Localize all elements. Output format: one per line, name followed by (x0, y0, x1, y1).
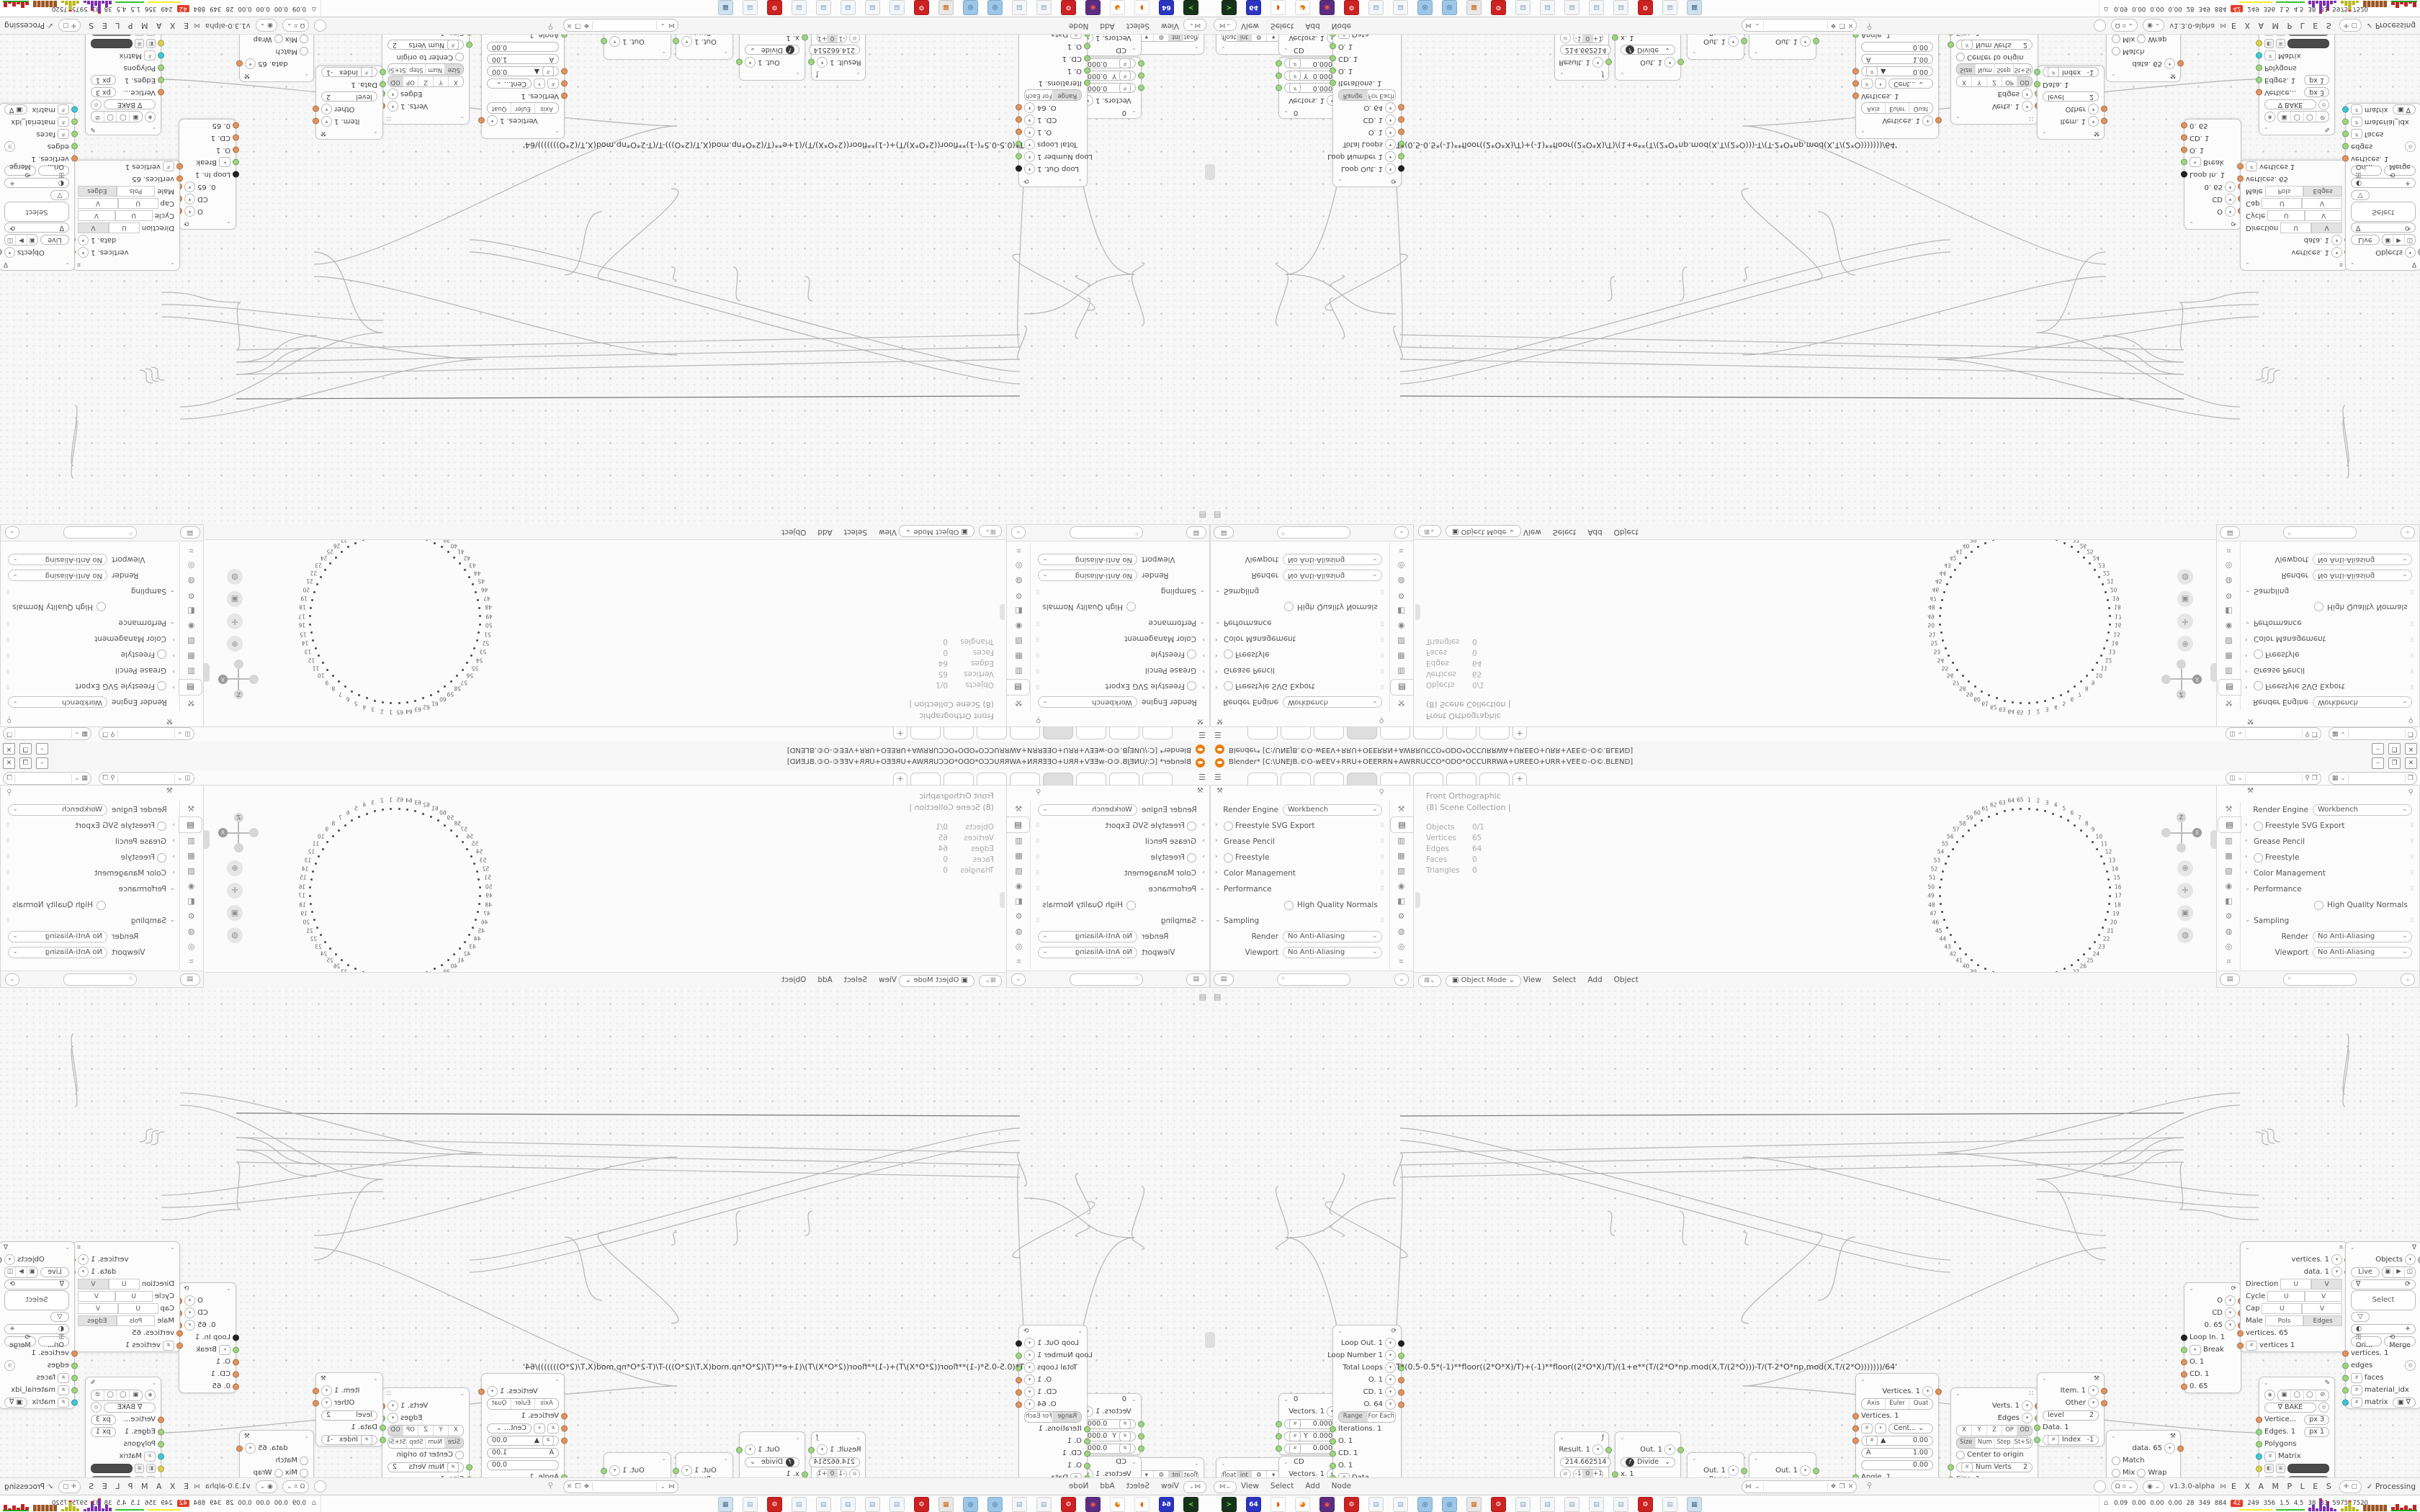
socket-orange[interactable] (2177, 1445, 2184, 1452)
option-button[interactable]: Z (1987, 1426, 2002, 1436)
table-cell-button[interactable]: Edges (78, 1315, 117, 1326)
node-header[interactable]: ⌄⟳ (179, 217, 236, 229)
table-cell-button[interactable]: V (2305, 210, 2342, 221)
option-button[interactable]: X (1957, 77, 1972, 87)
socket-green[interactable] (1813, 1467, 1819, 1474)
group-title[interactable]: Freestyle (1235, 650, 1269, 659)
menu-item[interactable]: Select (1553, 976, 1576, 984)
socket-green[interactable] (2256, 65, 2262, 71)
socket-orange[interactable] (561, 68, 568, 75)
socket-cyan[interactable] (2256, 1453, 2262, 1459)
math-function-dropdown[interactable]: fDivide⌄ (1621, 45, 1675, 55)
properties-tab-icon[interactable]: ⚒ (1008, 801, 1030, 816)
collapse-chevron-icon[interactable]: ⌄ (151, 1377, 156, 1389)
socket-orange[interactable] (233, 135, 239, 141)
display-toggle[interactable]: ◯ (2291, 1390, 2304, 1400)
collapse-chevron-icon[interactable]: ⌄ (304, 1431, 309, 1442)
socket-green[interactable] (2181, 1346, 2187, 1353)
math-function-dropdown[interactable]: fDivide⌄ (745, 1457, 799, 1467)
checkbox[interactable] (274, 1469, 283, 1477)
checkbox[interactable] (1284, 602, 1294, 611)
color-swatch[interactable] (2287, 39, 2329, 48)
group-title[interactable]: Performance (2254, 618, 2302, 627)
socket-green[interactable] (2181, 159, 2187, 166)
tree-unlink-button[interactable]: ✕ (1848, 22, 1854, 29)
socket-orange[interactable] (1852, 68, 1859, 75)
workspace-tab[interactable] (1043, 773, 1073, 786)
property-enum[interactable]: No Anti-Aliasing (8, 947, 107, 958)
group-title[interactable]: Freestyle SVG Export (2265, 682, 2345, 690)
copy-icon[interactable]: ❐ (2408, 730, 2414, 737)
taskbar-icon-firefox[interactable]: ◗ (1270, 1497, 1286, 1512)
node-header[interactable]: ⌄· (1216, 1458, 1286, 1470)
taskbar-icon-notepad[interactable]: ▤ (1540, 0, 1555, 15)
table-cell-button[interactable]: U (2262, 1303, 2302, 1314)
node-header[interactable]: ⌄✎ (86, 123, 161, 135)
socket-orange[interactable] (1852, 93, 1859, 99)
group-checkbox[interactable] (1187, 822, 1196, 831)
properties-tab-icon[interactable]: ⚙ (180, 588, 202, 603)
properties-tab-icon[interactable]: ▧ (2218, 634, 2240, 649)
socket-green[interactable] (2034, 69, 2040, 76)
socket-menu-icon[interactable]: ▾ (1024, 1350, 1035, 1361)
workspace-tab[interactable] (1413, 773, 1443, 786)
workspace-tab[interactable] (1109, 773, 1139, 786)
option-button[interactable]: Axis (534, 104, 558, 114)
editor-type-button[interactable]: ⊞⌄ (979, 525, 1002, 537)
group-checkbox[interactable] (1224, 649, 1233, 659)
node-header[interactable]: ⌄✎ (2259, 1377, 2334, 1389)
node-header[interactable]: ⌄∇ (0, 258, 74, 270)
socket-green[interactable] (1612, 35, 1618, 41)
menu-item[interactable]: Node (1069, 1482, 1088, 1490)
enum-pill[interactable]: Cent... ⌄ (487, 1423, 532, 1434)
value-pill[interactable]: 214.662514 (809, 1457, 860, 1467)
collapse-chevron-icon[interactable]: ⌄ (2350, 258, 2355, 270)
node-header[interactable]: ⌄⚒ (2107, 1431, 2180, 1442)
socket-menu-icon[interactable]: ▾ (1385, 127, 1396, 138)
collapse-chevron-icon[interactable]: ⌄ (1559, 68, 1564, 80)
group-title[interactable]: Freestyle SVG Export (1106, 682, 1186, 690)
property-enum[interactable]: No Anti-Aliasing (1283, 570, 1382, 581)
viewport-tool-icon[interactable]: ✛ (2177, 613, 2193, 629)
socket-menu-icon[interactable]: ▾ (1664, 1444, 1675, 1455)
minimize-button[interactable]: – (2372, 743, 2384, 755)
socket-green[interactable] (736, 1446, 743, 1453)
menu-item[interactable]: Add (1305, 22, 1319, 30)
taskbar-icon-floppy-64[interactable]: 64 (1246, 1497, 1261, 1512)
mode-selector[interactable]: ▣ Object Mode ⌄ (899, 525, 974, 537)
taskbar-icon-gear-red[interactable]: ⚙ (1061, 1497, 1076, 1512)
group-title[interactable]: Performance (1148, 618, 1196, 627)
menu-item[interactable]: View (1241, 22, 1259, 30)
socket-black[interactable] (1398, 166, 1404, 172)
socket-orange[interactable] (236, 1445, 243, 1452)
properties-tab-icon[interactable]: ◍ (2218, 573, 2240, 588)
taskbar-icon-notepad[interactable]: ▤ (1393, 1497, 1408, 1512)
node-list-item[interactable]: ⌄⚒Item. 1▾Other▾level2Data. 1#Index-1 (315, 66, 383, 140)
navigation-gizmo[interactable]: ZX (2166, 663, 2197, 695)
socket-green[interactable] (2034, 81, 2040, 88)
view-layer-selector[interactable]: ▦⌄❐ (3, 772, 91, 785)
taskbar-icon-notepad[interactable]: ▤ (816, 1497, 831, 1512)
collapse-chevron-icon[interactable]: ⌄ (2245, 258, 2250, 270)
socket-menu-icon[interactable]: ▾ (2088, 104, 2099, 114)
taskbar-icon-notepad[interactable]: ▤ (1564, 1497, 1579, 1512)
menu-item[interactable]: Add (817, 528, 832, 536)
node-tree-selector[interactable]: ⋈⌄❖❐✕ (1742, 19, 1857, 32)
taskbar-icon-notepad[interactable]: ▤ (1036, 0, 1052, 15)
taskbar-icon-notepad[interactable]: ▤ (1589, 1497, 1604, 1512)
taskbar-icon-terminal[interactable]: ≻ (1183, 0, 1198, 15)
property-enum[interactable]: No Anti-Aliasing (1283, 554, 1382, 565)
socket-orange[interactable] (2181, 1371, 2187, 1377)
option-button[interactable]: Euler (1886, 104, 1909, 114)
properties-tab-icon[interactable]: ⌗ (1390, 543, 1412, 558)
socket-orange[interactable] (158, 1416, 164, 1423)
taskbar-icon-gear-red[interactable]: ⚙ (1638, 0, 1653, 15)
refresh-icon[interactable]: ⟳ (9, 1280, 15, 1288)
socket-green[interactable] (233, 159, 239, 166)
table-cell-button[interactable]: U (118, 1303, 158, 1314)
socket-menu-icon[interactable]: ▾ (321, 1398, 332, 1408)
bake-button[interactable]: ∇ BAKE (104, 100, 156, 110)
group-title[interactable]: Sampling (1161, 917, 1196, 925)
editor-type-button[interactable]: ⊞⌄ (979, 975, 1002, 987)
option-icon[interactable]: ◉ (2264, 112, 2275, 122)
color-swatch[interactable] (91, 39, 133, 48)
socket-green[interactable] (1330, 43, 1336, 50)
table-cell-button[interactable]: V (2302, 198, 2342, 209)
node-editor[interactable]: ▤ ⌄·floatint⚙▾#an int64⌄0Vectors. 1▾#0.0… (0, 988, 1210, 1477)
node-header[interactable]: ⌄ƒ (1555, 1432, 1608, 1444)
checkbox[interactable] (300, 35, 308, 44)
socket-green[interactable] (71, 1387, 78, 1393)
socket-orange[interactable] (1016, 1389, 1022, 1395)
add-row[interactable]: ◐+ (2351, 179, 2416, 189)
collapse-chevron-icon[interactable]: ⌄ (555, 127, 560, 138)
navigation-gizmo[interactable]: ZX (223, 817, 254, 849)
socket-option-icon[interactable]: # (163, 162, 174, 172)
refresh-icon[interactable]: ⟳ (9, 224, 15, 232)
taskbar-icon-notepad[interactable]: ▤ (1012, 1497, 1027, 1512)
socket-yellow[interactable] (2256, 40, 2262, 47)
node-editor[interactable]: ▤ ⌄·floatint⚙▾#an int64⌄0Vectors. 1▾#0.0… (1210, 988, 2420, 1477)
properties-tab-icon[interactable]: ◉ (1390, 618, 1412, 634)
node-header[interactable]: ⌄∇ (0, 1242, 74, 1254)
value-pill[interactable]: level2 (2043, 1410, 2099, 1421)
socket-green[interactable] (158, 65, 164, 71)
node-header[interactable]: ⌄ƒ (812, 1432, 865, 1444)
node-header[interactable]: ⌄⌗ (73, 1242, 179, 1254)
node-math-result[interactable]: ⌄ƒResult. 1▾214.662514⊘-10+1 (1554, 31, 1609, 81)
view-layer-selector[interactable]: ▦⌄❐ (2329, 727, 2417, 740)
search-input[interactable] (1070, 526, 1143, 539)
taskbar-icon-notepad[interactable]: ▤ (1540, 1497, 1555, 1512)
value-pill[interactable]: px 1 (91, 76, 116, 86)
taskbar-icon-notepad[interactable]: ▤ (816, 0, 831, 15)
option-button[interactable]: Z (1987, 77, 2002, 87)
taskbar-icon-calculator[interactable]: ▦ (1466, 0, 1482, 15)
socket-green[interactable] (1276, 85, 1282, 91)
taskbar-icon-notepad[interactable]: ▤ (865, 0, 880, 15)
socket-green[interactable] (2342, 143, 2349, 150)
socket-menu-icon[interactable]: ▾ (78, 235, 89, 246)
eye-icon[interactable]: ◎ (2405, 1360, 2416, 1371)
collapse-chevron-icon[interactable]: ⌄ (1131, 44, 1137, 55)
properties-tab-icon[interactable]: ◧ (2218, 603, 2240, 618)
socket-menu-icon[interactable]: ▾ (1385, 1338, 1396, 1349)
node-editor[interactable]: ▤ ⌄·floatint⚙▾#an int64⌄0Vectors. 1▾#0.0… (1210, 35, 2420, 524)
socket-orange[interactable] (233, 1359, 239, 1365)
color-swatch[interactable] (91, 1464, 133, 1473)
socket-menu-icon[interactable]: ▾ (2405, 1254, 2416, 1265)
socket-option-icon[interactable]: # (2351, 117, 2362, 127)
socket-orange[interactable] (1852, 81, 1859, 87)
socket-orange[interactable] (2237, 1330, 2244, 1336)
taskbar-icon-gear-red[interactable]: ⚙ (1061, 0, 1076, 15)
tree-new-button[interactable]: ❐ (575, 1483, 581, 1490)
workspace-tab[interactable] (1142, 726, 1173, 739)
socket-menu-icon[interactable]: ▾ (817, 57, 828, 68)
pin-icon[interactable]: ⚲ (2408, 716, 2414, 724)
viewport-tool-icon[interactable]: ✛ (227, 883, 243, 899)
table-cell-button[interactable]: V (78, 1279, 109, 1290)
display-toggle[interactable]: ⊘ (2316, 112, 2329, 122)
scene-selector[interactable]: ◫⌄⚲❐ (99, 727, 194, 740)
socket-green[interactable] (1605, 1446, 1612, 1453)
color-option-icon[interactable]: ◧ (2264, 1464, 2274, 1473)
socket-menu-icon[interactable]: ▾ (1024, 1338, 1035, 1349)
socket-menu-icon[interactable]: ▾ (1592, 1444, 1603, 1455)
socket-orange[interactable] (233, 1371, 239, 1377)
properties-tab-icon[interactable]: ▥ (2218, 664, 2240, 679)
taskbar-icon-calculator[interactable]: ▦ (1466, 1497, 1482, 1512)
plus-button[interactable]: + (2405, 179, 2411, 187)
taskbar-icon-blender[interactable]: ◕ (1295, 1497, 1310, 1512)
node-tree-selector[interactable]: ⋈⌄❖❐✕ (563, 19, 678, 32)
group-title[interactable]: Sampling (1224, 917, 1259, 925)
properties-tab-icon[interactable]: ▧ (1008, 863, 1030, 878)
socket-menu-icon[interactable]: ▾ (1385, 139, 1396, 150)
value-pill[interactable]: #Num Verts2 (1956, 1462, 2033, 1472)
collapse-chevron-icon[interactable]: ⌄ (1955, 1388, 1960, 1400)
viewport-tool-icon[interactable]: ✛ (227, 613, 243, 629)
node-header[interactable]: ⌄∷ (382, 1388, 469, 1400)
checkbox[interactable] (1956, 1451, 1965, 1459)
value-pill[interactable]: ▣ ∇ (2393, 1398, 2416, 1408)
socket-orange[interactable] (561, 1437, 568, 1444)
taskbar-icon-disc[interactable]: ◎ (987, 0, 1003, 15)
node-header[interactable]: ⌄⟳ (2184, 1283, 2241, 1295)
viewport-tool-icon[interactable]: ⊕ (2177, 860, 2193, 876)
node-npanel-tab[interactable] (1205, 1332, 1210, 1348)
socket-menu-icon[interactable]: ▾ (2088, 1385, 2099, 1396)
taskbar-icon-owl[interactable]: ◉ (1319, 0, 1335, 15)
proportional-edit-button[interactable] (314, 19, 326, 32)
collapse-chevron-icon[interactable]: ⌄ (1754, 48, 1759, 59)
socket-orange[interactable] (1398, 117, 1404, 123)
search-input[interactable] (2283, 526, 2357, 539)
taskbar-icon-terminal[interactable]: ≻ (1222, 0, 1237, 15)
menu-item[interactable]: Object (781, 976, 806, 984)
select-button[interactable]: Select (2351, 202, 2416, 222)
socket-orange[interactable] (176, 1342, 183, 1349)
property-enum[interactable]: No Anti-Aliasing (1038, 931, 1137, 942)
socket-menu-icon[interactable]: ▾ (1728, 36, 1739, 47)
node-header[interactable]: ⌄ (604, 48, 671, 59)
viewport-tool-icon[interactable]: ▣ (227, 905, 243, 921)
group-checkbox[interactable] (1187, 681, 1196, 690)
node-header[interactable]: ⌄∷ (1951, 1388, 2038, 1400)
socket-green[interactable] (1330, 1426, 1336, 1432)
restore-button[interactable]: ❐ (19, 757, 32, 769)
workspace-tab[interactable] (1347, 726, 1377, 739)
select-button[interactable]: Select (4, 202, 69, 222)
taskbar-icon-notepad[interactable]: ▤ (1613, 1497, 1628, 1512)
option-button[interactable]: OD (2017, 1426, 2032, 1436)
option-button[interactable]: Axis (1862, 104, 1886, 114)
node-header[interactable]: ⌄⚒ (2038, 1373, 2104, 1385)
proportional-edit-button[interactable] (2094, 19, 2106, 32)
node-header[interactable]: ⌄✎ (2259, 123, 2334, 135)
properties-tab-icon[interactable]: ⌗ (2218, 543, 2240, 558)
display-toggle[interactable]: ◯ (104, 1390, 117, 1400)
collapse-chevron-icon[interactable]: ⌄ (170, 258, 175, 270)
workspace-tab[interactable] (1314, 773, 1344, 786)
color-option-icon[interactable]: ◧ (146, 1464, 156, 1473)
node-header[interactable]: ⌄⚒ (316, 127, 382, 139)
socket-cyan[interactable] (158, 53, 164, 59)
option-icon[interactable]: ▾ (1875, 79, 1886, 89)
socket-menu-icon[interactable]: ▾ (1024, 1399, 1035, 1410)
socket-black[interactable] (1016, 166, 1022, 172)
sidebar-handle[interactable] (204, 830, 210, 849)
color-swatch[interactable] (2287, 1464, 2329, 1473)
option-button[interactable]: St+Si (2014, 65, 2032, 75)
live-toggle[interactable]: Live (2351, 235, 2380, 246)
property-enum[interactable]: Workbench (8, 696, 107, 708)
socket-orange[interactable] (2177, 60, 2184, 67)
node-uv-connection[interactable]: ⌄⌗vertices. 1▾data. 1▾DirectionUVCycleUV… (2240, 160, 2348, 271)
socket-green[interactable] (1741, 38, 1747, 45)
display-toggle[interactable]: ⊘ (2316, 1390, 2329, 1400)
navigation-gizmo[interactable]: ZX (2166, 817, 2197, 849)
checkbox[interactable] (274, 35, 283, 44)
restore-button[interactable]: ❐ (2388, 757, 2401, 769)
live-option[interactable]: ▶ (2393, 1267, 2404, 1277)
property-enum[interactable]: Workbench (1283, 696, 1382, 708)
properties-tab-icon[interactable]: ⌗ (180, 954, 202, 969)
socket-green[interactable] (808, 1446, 815, 1453)
properties-tab-icon[interactable]: ◍ (180, 573, 202, 588)
socket-green[interactable] (1138, 1445, 1144, 1452)
collapse-chevron-icon[interactable]: ⌄ (1955, 112, 1960, 124)
search-input[interactable] (63, 526, 137, 539)
option-button[interactable]: For Each (1025, 91, 1053, 101)
menu-item[interactable]: Add (1100, 1482, 1114, 1490)
option-button[interactable]: Size (444, 1438, 463, 1448)
option-button[interactable]: Euler (511, 104, 534, 114)
tree-name-input[interactable] (592, 21, 657, 30)
node-rotate[interactable]: ⌄Vertices. 1▾AxisEulerQuatVertices. 1#▾C… (1855, 28, 1939, 139)
checkbox[interactable] (1956, 53, 1965, 62)
value-pill[interactable]: #0.000 (1083, 1419, 1136, 1429)
checkbox[interactable] (1126, 901, 1136, 910)
collapse-chevron-icon[interactable]: ⌄ (1620, 68, 1625, 80)
group-title[interactable]: Performance (1224, 618, 1272, 627)
value-pill[interactable]: level2 (321, 1410, 377, 1421)
socket-green[interactable] (1276, 1421, 1282, 1427)
group-checkbox[interactable] (1224, 853, 1233, 863)
socket-menu-icon[interactable]: ▾ (609, 1465, 620, 1476)
properties-tab-icon[interactable]: ◍ (1390, 573, 1412, 588)
tree-unlink-button[interactable]: ✕ (567, 22, 573, 29)
taskbar-icon-calculator-blue[interactable]: ▦ (718, 0, 733, 15)
option-button[interactable]: Range (1339, 91, 1368, 101)
properties-tab-icon[interactable]: ▦ (1008, 848, 1030, 863)
socket-menu-icon[interactable]: ▾ (1385, 1362, 1396, 1373)
socket-green[interactable] (380, 1436, 386, 1443)
dropdown-button[interactable]: ⌄ (5, 526, 19, 539)
editor-type-button[interactable]: ▤ (2220, 526, 2240, 539)
properties-tab-icon[interactable]: ▦ (2218, 848, 2240, 863)
value-pill[interactable]: 0.00 (487, 1460, 559, 1470)
menu-item[interactable]: Select (1270, 1482, 1294, 1490)
property-enum[interactable]: No Anti-Aliasing (8, 570, 107, 581)
option-button[interactable]: Euler (1886, 1399, 1909, 1409)
collapse-chevron-icon[interactable]: ⌄ (1337, 175, 1343, 186)
add-row[interactable]: ◐+ (2351, 1324, 2416, 1334)
value-pill[interactable]: px 1 (2304, 76, 2329, 86)
close-button[interactable]: ✕ (3, 743, 15, 755)
node-header[interactable]: ⌄ (1856, 1374, 1938, 1385)
group-title[interactable]: Sampling (131, 587, 166, 595)
value-pill[interactable]: #▲0.00 (487, 67, 559, 77)
properties-tab-icon[interactable]: ▥ (180, 664, 202, 679)
socket-orange[interactable] (2342, 1350, 2349, 1356)
socket-orange[interactable] (176, 163, 183, 170)
socket-option-icon[interactable]: # (58, 117, 69, 127)
navigation-gizmo[interactable]: ZX (223, 663, 254, 695)
collapse-chevron-icon[interactable]: ⌄ (460, 112, 465, 124)
taskbar-icon-notepad[interactable]: ▤ (792, 0, 807, 15)
display-toggle[interactable]: ◯ (2304, 112, 2317, 122)
menu-item[interactable]: View (1523, 976, 1541, 984)
socket-menu-icon[interactable]: ▾ (1385, 1387, 1396, 1398)
properties-tab-icon[interactable]: ▦ (1008, 649, 1030, 664)
taskbar-icon-disc[interactable]: ◎ (963, 0, 978, 15)
socket-menu-icon[interactable]: ▾ (2405, 247, 2416, 258)
small-button[interactable]: ▽ (2351, 1312, 2370, 1322)
socket-orange[interactable] (176, 1330, 183, 1336)
socket-option-icon[interactable]: # (2351, 105, 2362, 115)
option-button[interactable]: Size (444, 65, 463, 75)
group-checkbox[interactable] (157, 681, 166, 690)
table-cell-button[interactable]: V (78, 210, 115, 221)
socket-menu-icon[interactable]: ▾ (184, 181, 195, 192)
node-math-result[interactable]: ⌄ƒResult. 1▾214.662514⊘-10+1 (811, 1431, 866, 1481)
properties-tab-icon[interactable]: ⚙ (180, 909, 202, 924)
socket-menu-icon[interactable]: ▾ (387, 1413, 398, 1423)
properties-tab-icon[interactable]: ▤ (179, 816, 202, 833)
group-checkbox[interactable] (2254, 681, 2263, 690)
properties-tab-icon[interactable]: ⚙ (1008, 909, 1030, 924)
taskbar-icon-notepad[interactable]: ▤ (1368, 1497, 1384, 1512)
socket-green[interactable] (1084, 68, 1090, 74)
node-header[interactable]: ⌄∷ (382, 112, 469, 124)
collapse-chevron-icon[interactable]: ⌄ (2245, 1242, 2250, 1254)
